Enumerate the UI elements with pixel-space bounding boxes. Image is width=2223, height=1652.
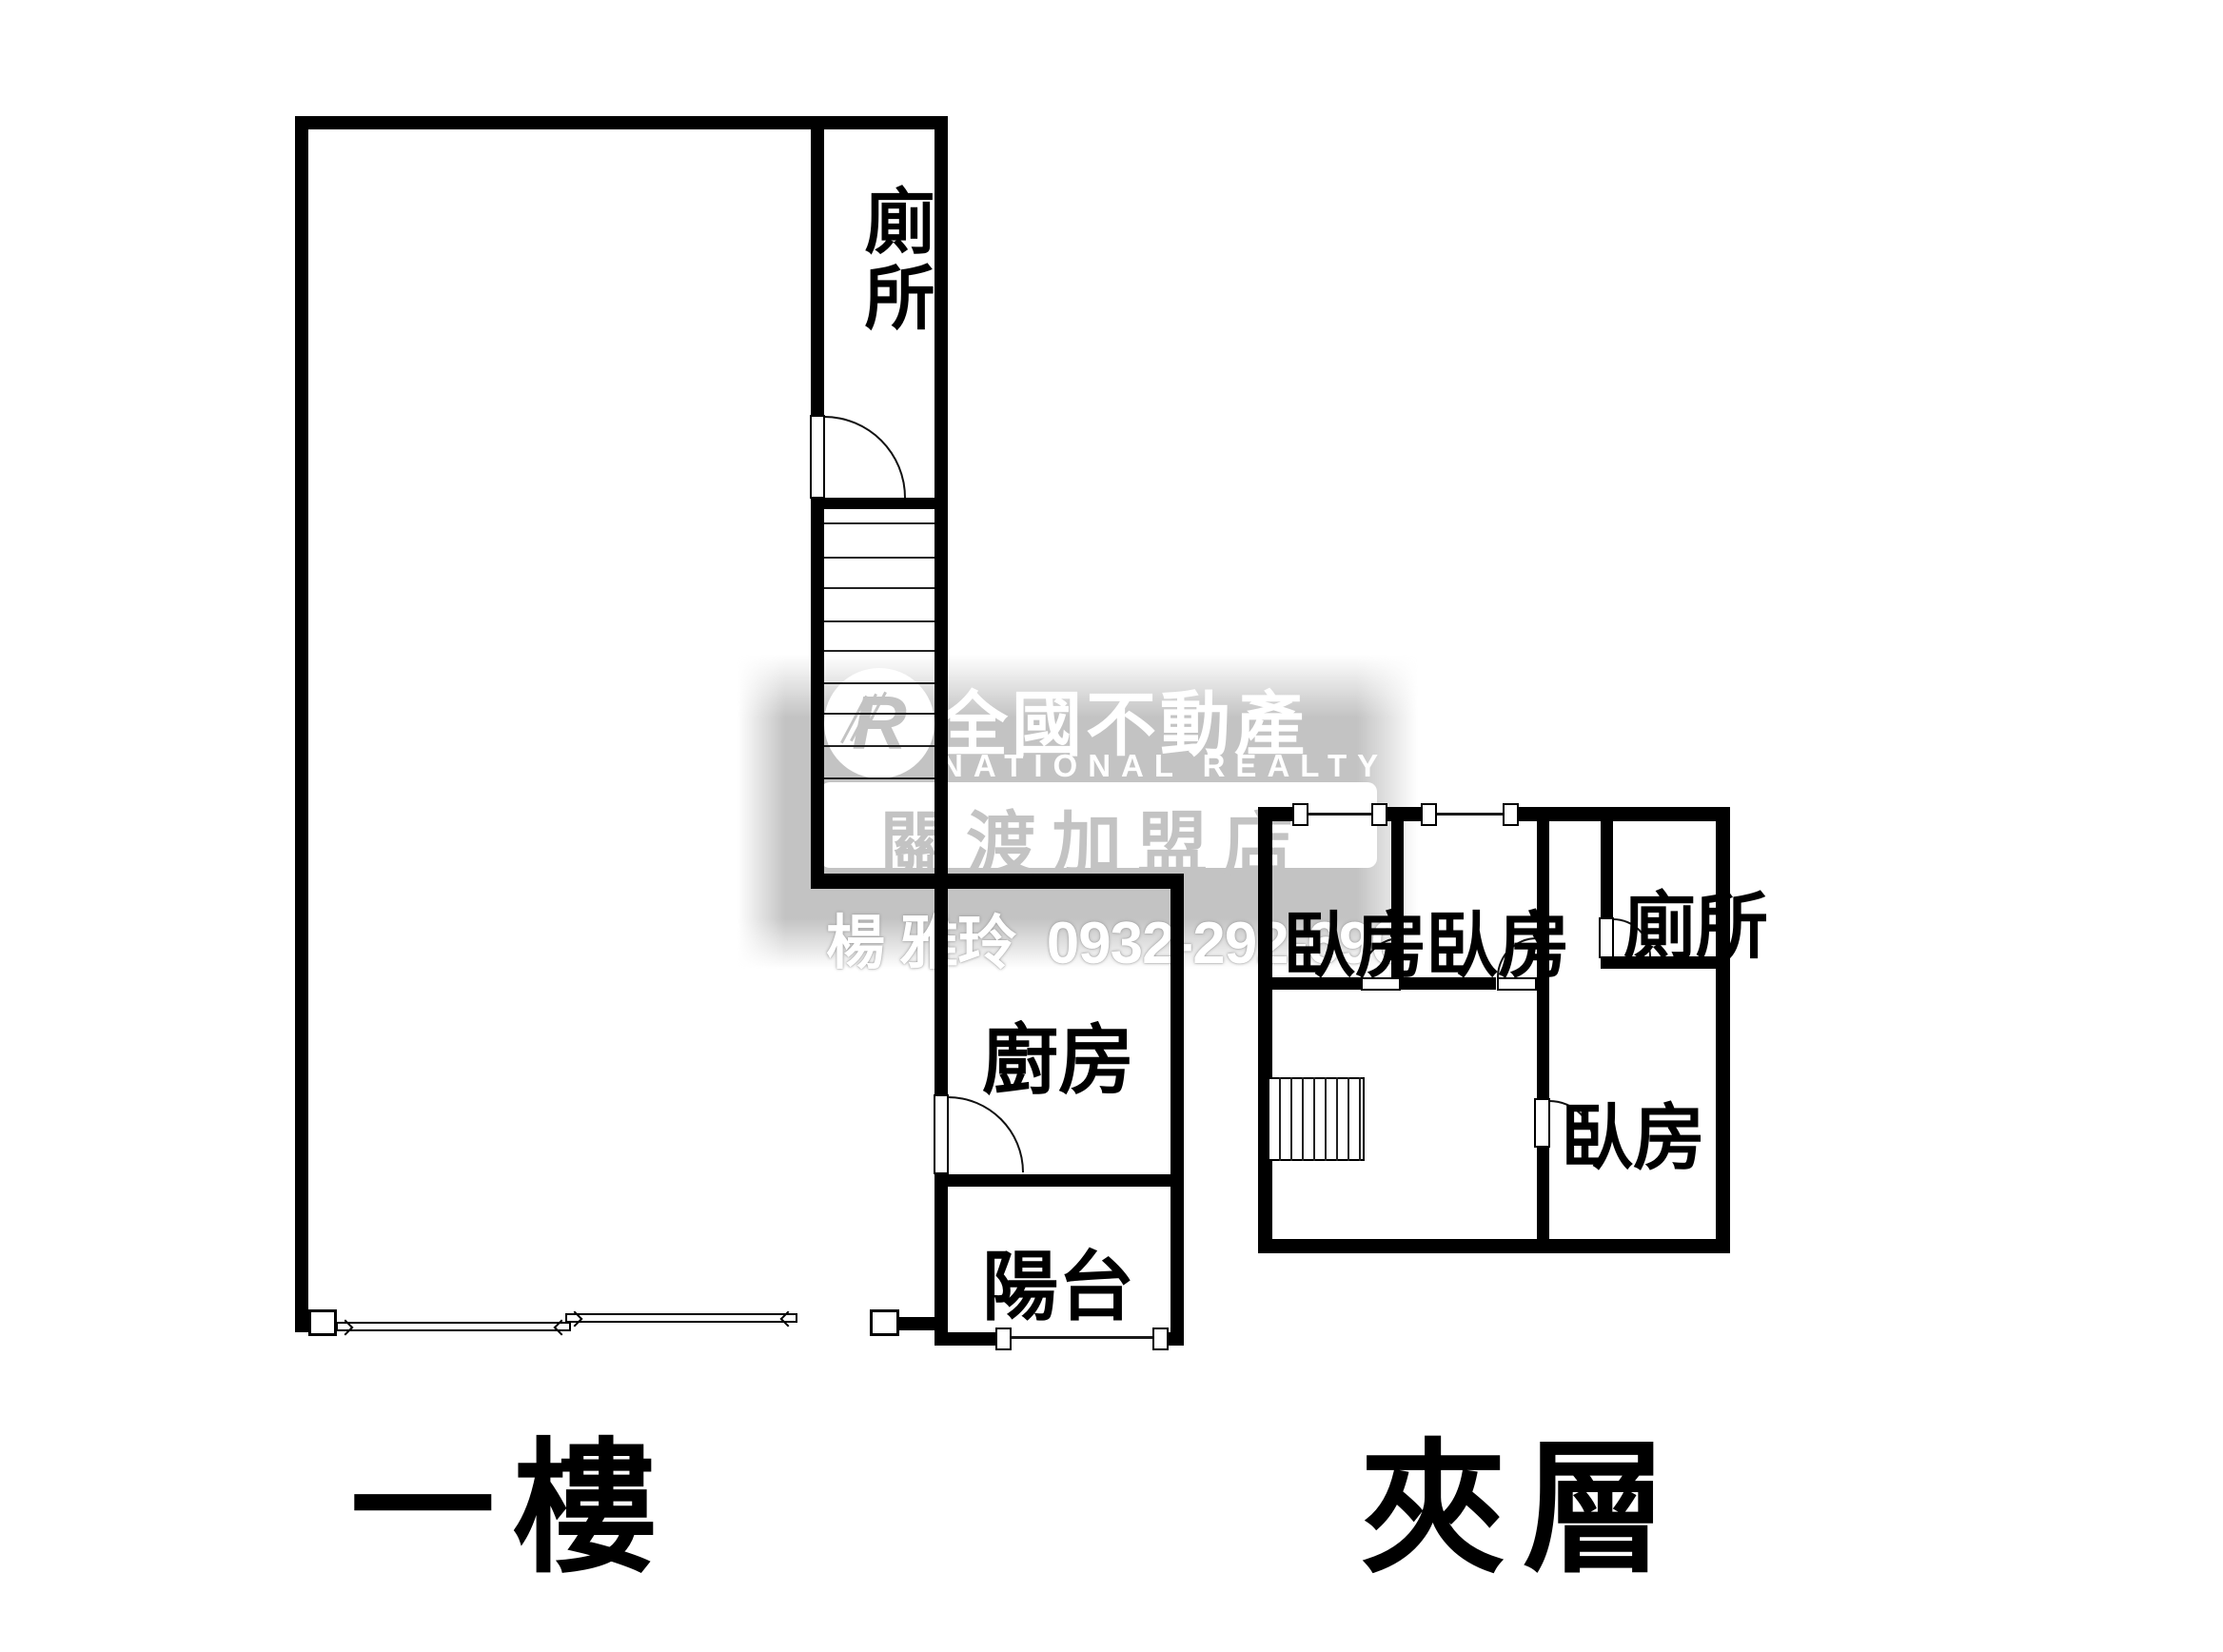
wall [934,1172,948,1346]
realty-logo-icon: R [824,668,934,778]
stair-step [824,522,934,524]
stair-step [824,620,934,622]
window-cap [1152,1327,1169,1350]
window-cap [1371,803,1387,826]
agent-name: 楊 雅玲 [826,911,1015,976]
door-leaf [1534,1098,1550,1148]
wall [1171,874,1184,1346]
stair-step [1348,1077,1349,1161]
wall [295,116,948,129]
stair-step [824,745,934,747]
wall [899,1317,937,1330]
stair-step [824,587,934,589]
stair-step [1290,1077,1292,1161]
wall [1258,807,1272,1253]
stair-step [1359,1077,1361,1161]
wall [1384,807,1424,821]
wall [811,498,824,888]
wall [1601,807,1613,920]
wall [811,874,1184,889]
watermark-brand-name-en: NATIONAL REALTY [940,748,1388,784]
door-leaf [1599,917,1614,958]
stair-step [824,777,934,779]
door-leaf [810,415,825,499]
stair-step [1313,1077,1315,1161]
room-label-toilet-mezzanine: 廁所 [1623,868,1768,973]
room-label-bedroom1: 臥房 [1283,887,1427,992]
wall [1537,1146,1549,1253]
stair-step [824,682,934,684]
stair-step [824,557,934,559]
sliding-door-post [870,1309,899,1336]
stair-step [1336,1077,1338,1161]
wall [811,498,948,509]
room-label-balcony: 陽台 [982,1226,1134,1336]
sliding-door-post [308,1309,337,1336]
stair-step [1279,1077,1281,1161]
window-line [1308,813,1374,816]
stair-step [1325,1077,1327,1161]
stair-step [824,650,934,652]
window-cap [1292,803,1308,826]
sliding-door-panel [336,1322,571,1331]
wall [934,1174,1184,1187]
door-arc [824,416,906,498]
window-line [1437,813,1505,816]
room-label-toilet-1f: 廁所 [843,185,945,337]
mezzanine-caption: 夾層 [1361,1391,1684,1601]
floorplan-canvas: R 全國不動產 NATIONAL REALTY 關渡加盟店 楊 雅玲 0932-… [0,0,2223,1652]
window-line [1011,1336,1155,1339]
wall [1258,1239,1730,1253]
wall [1519,807,1730,821]
stairs [1268,1077,1365,1161]
stair-step [824,713,934,715]
window-cap [1503,803,1519,826]
sliding-door-panel [565,1313,797,1323]
door-leaf [934,1094,949,1174]
room-label-bedroom2: 臥房 [1426,887,1570,992]
wall [295,116,308,1332]
room-label-bedroom3: 臥房 [1561,1079,1705,1184]
room-label-kitchen: 廚房 [982,999,1134,1110]
floor1-caption: 一樓 [350,1391,674,1601]
stair-step [1302,1077,1304,1161]
wall [811,116,824,416]
window-cap [1421,803,1437,826]
